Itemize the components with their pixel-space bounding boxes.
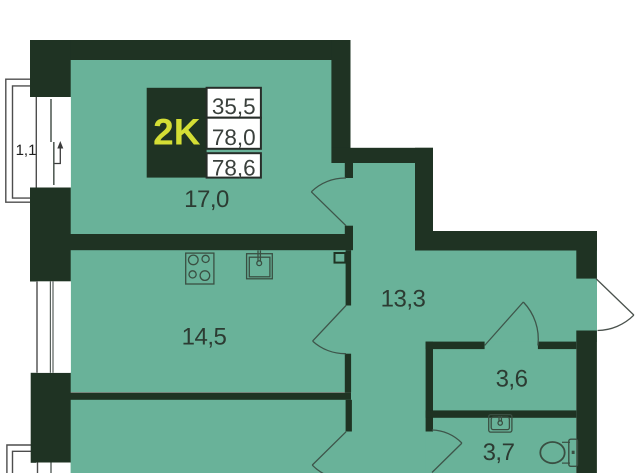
- svg-text:35,5: 35,5: [212, 94, 256, 119]
- svg-text:17,0: 17,0: [184, 186, 229, 213]
- svg-text:14,5: 14,5: [182, 324, 227, 351]
- svg-text:78,0: 78,0: [212, 125, 256, 150]
- svg-text:2K: 2K: [153, 112, 201, 153]
- svg-text:3,7: 3,7: [483, 439, 515, 466]
- svg-text:78,6: 78,6: [212, 156, 256, 181]
- svg-text:13,3: 13,3: [381, 286, 426, 313]
- svg-text:3,6: 3,6: [496, 366, 528, 393]
- svg-text:1,1: 1,1: [16, 142, 37, 159]
